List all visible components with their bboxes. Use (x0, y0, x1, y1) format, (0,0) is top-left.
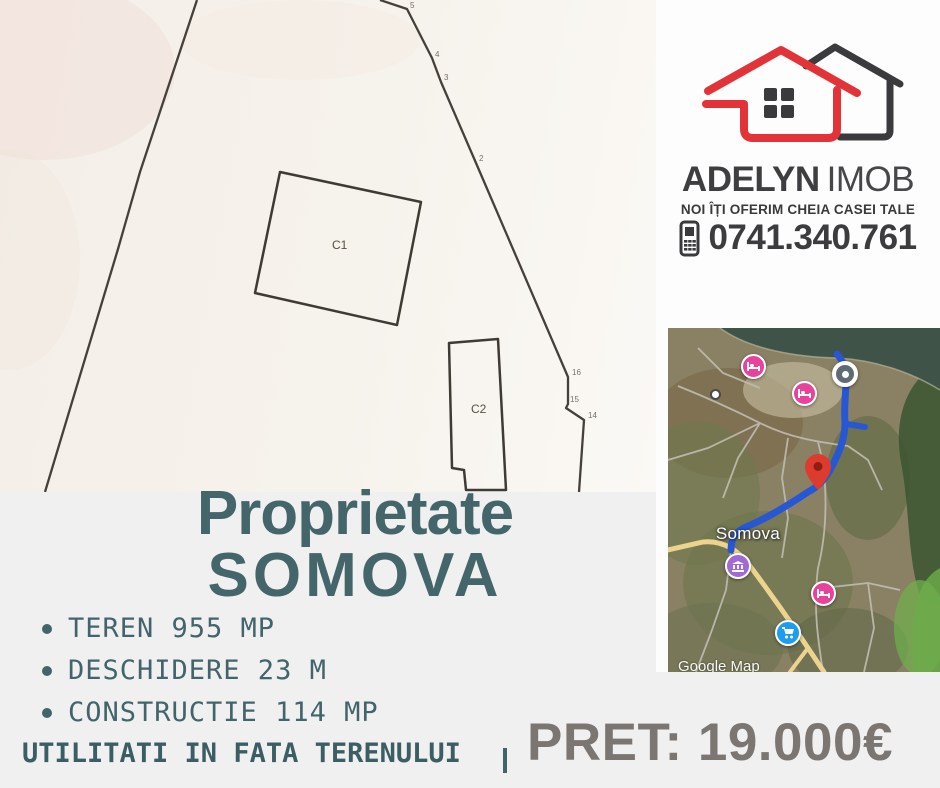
feature-text: DESCHIDERE 23 M (68, 655, 327, 686)
hotel-marker-icon (811, 581, 836, 606)
hotel-marker-icon (792, 381, 817, 406)
destination-pin-icon (805, 454, 831, 490)
hotel-marker-icon (741, 354, 766, 379)
feature-item-constructie: CONSTRUCTIE 114 MP (42, 697, 379, 728)
cadastral-plan-drawing: C1 C2 5 4 3 2 16 15 14 (0, 0, 656, 492)
agency-name: ADELYNIMOB (656, 160, 940, 200)
parcel-boundary-right (380, 0, 584, 492)
feature-list: TEREN 955 MP DESCHIDERE 23 M CONSTRUCTIE… (42, 613, 379, 739)
phone-number: 0741.340.761 (708, 218, 916, 258)
window-icon (764, 88, 794, 118)
vertex-label: 16 (572, 368, 581, 377)
vertex-label: 4 (435, 50, 440, 59)
bullet-dot (42, 624, 52, 634)
route-start-marker (832, 361, 858, 387)
location-map: Somova Google Map (668, 328, 940, 672)
shopping-marker-icon (775, 620, 801, 646)
bullet-dot (42, 666, 52, 676)
utilities-note: UTILITATI IN FATA TERENULUI (22, 738, 461, 769)
listing-title: Proprietate SOMOVA (15, 483, 695, 607)
vertex-label: 5 (410, 1, 415, 10)
feature-item-teren: TEREN 955 MP (42, 613, 379, 644)
vertex-label: 3 (444, 73, 449, 82)
price-label: PRET: 19.000€ (527, 712, 893, 773)
map-watermark: Google Map (678, 658, 760, 672)
agency-logo (694, 40, 906, 160)
feature-item-deschidere: DESCHIDERE 23 M (42, 655, 379, 686)
agency-name-primary: ADELYN (682, 160, 820, 199)
mobile-phone-icon (679, 220, 700, 257)
phone-row: 0741.340.761 (656, 218, 940, 258)
text-cursor-bar (503, 748, 507, 773)
landmark-marker-icon (725, 553, 751, 579)
bullet-dot (42, 708, 52, 718)
map-place-label: Somova (698, 524, 798, 544)
vertex-label: 14 (588, 411, 597, 420)
vertex-labels: 5 4 3 2 16 15 14 (410, 1, 597, 420)
feature-text: CONSTRUCTIE 114 MP (68, 697, 379, 728)
vertex-label: 2 (479, 154, 484, 163)
feature-text: TEREN 955 MP (68, 613, 275, 644)
listing-title-line2: SOMOVA (15, 545, 695, 607)
cadastral-plan-scan: C1 C2 5 4 3 2 16 15 14 (0, 0, 656, 492)
agency-tagline: NOI ÎȚI OFERIM CHEIA CASEI TALE (656, 202, 940, 217)
building-c1-label: C1 (332, 238, 348, 252)
vertex-label: 15 (570, 395, 579, 404)
houses-logo-icon (694, 40, 906, 160)
agency-name-secondary: IMOB (827, 160, 914, 199)
poi-dot-marker (710, 389, 721, 400)
building-c2-label: C2 (471, 402, 487, 416)
real-estate-flyer: C1 C2 5 4 3 2 16 15 14 (0, 0, 940, 788)
satellite-terrain (668, 328, 940, 672)
listing-title-line1: Proprietate (15, 483, 695, 545)
